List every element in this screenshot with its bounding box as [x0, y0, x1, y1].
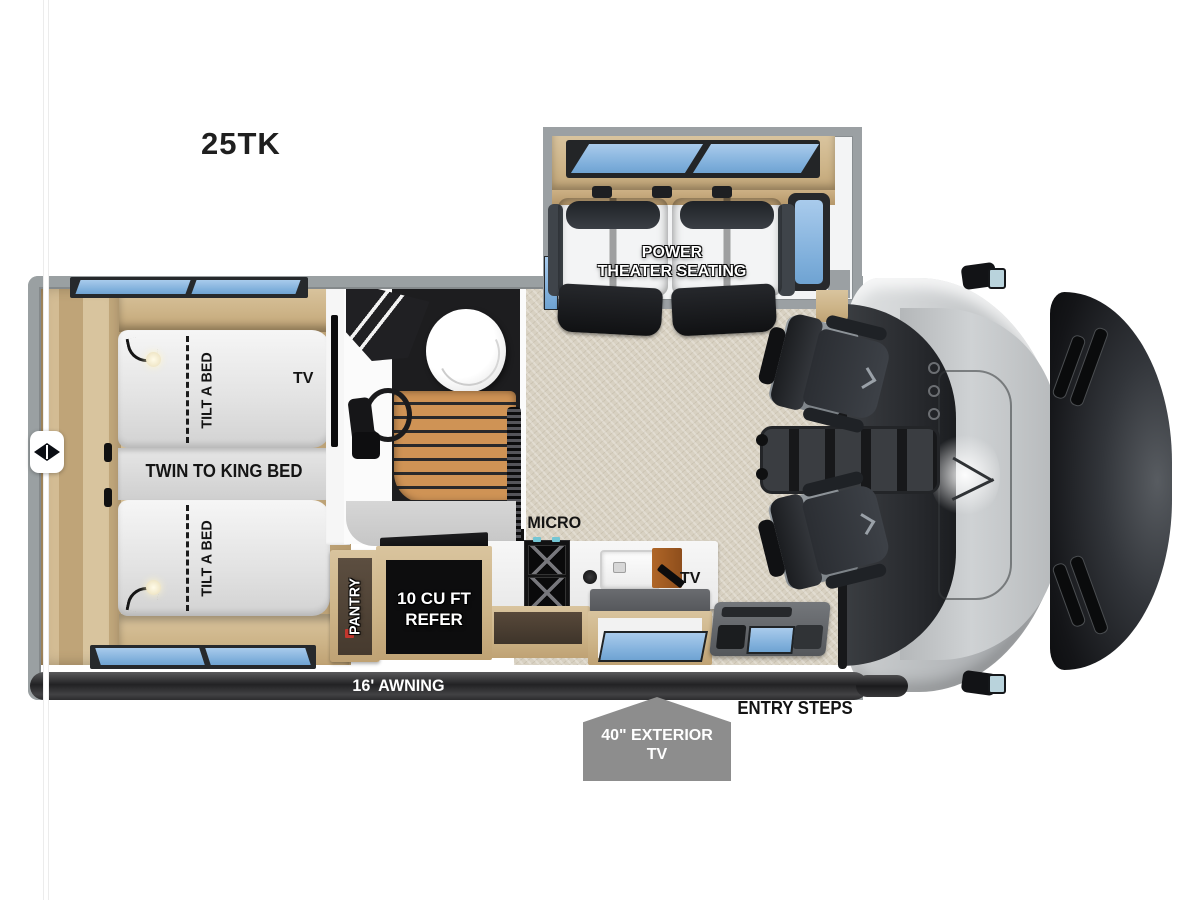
- micro-label: MICRO: [527, 513, 581, 533]
- slideout-side-window-right-pane: [795, 200, 823, 284]
- bath-sink-basin: [352, 432, 380, 459]
- refer-label: 10 CU FT REFER: [386, 588, 482, 630]
- tilt-bed-fold-line-bottom: [186, 505, 189, 611]
- exterior-tv-label: 40" EXTERIOR TV: [583, 726, 731, 764]
- slideout-window-pane2: [693, 144, 819, 173]
- slideout-window-pane1: [571, 144, 703, 173]
- reading-lamp-top-shade: [146, 352, 161, 367]
- entry-steps-tread-right: [793, 625, 824, 649]
- cabinet-handle-upper: [104, 443, 112, 462]
- theater-footrest-right: [671, 283, 777, 336]
- seat-mount-tab2: [652, 186, 672, 198]
- tilt-a-bed-label-bottom: TILT A BED: [199, 505, 216, 611]
- slide-indicator: [30, 431, 64, 473]
- entry-door-window: [598, 631, 708, 662]
- bedroom-window-top-pane1: [75, 280, 190, 294]
- sink-drain: [613, 562, 626, 573]
- shower-teak-floor: [394, 391, 516, 503]
- dash-vent-dot-1: [928, 362, 940, 374]
- awning-label: 16' AWNING: [352, 676, 444, 696]
- bedroom-window-bottom-pane2: [205, 648, 311, 665]
- pantry-label: PANTRY: [347, 559, 364, 654]
- awning-roller-cap: [856, 675, 908, 697]
- stove-knob-left: [533, 537, 541, 542]
- entry-steps-top-rail: [721, 607, 792, 617]
- tilt-bed-fold-line-top: [186, 336, 189, 443]
- refer-label-line2: REFER: [386, 609, 482, 630]
- refer-label-line1: 10 CU FT: [386, 588, 482, 609]
- tilt-a-bed-label-top: TILT A BED: [199, 337, 216, 443]
- dash-vent-dot-3: [928, 408, 940, 420]
- bedroom-tv: [331, 315, 338, 447]
- cabinet-handle-lower: [104, 488, 112, 507]
- stove-burner-top: [528, 545, 566, 575]
- entry-steps: [709, 602, 831, 656]
- bedroom-tv-label: TV: [293, 370, 313, 388]
- awning-bar: [30, 672, 868, 700]
- windshield-reflection: [930, 430, 1000, 520]
- side-mirror-bottom-glass: [988, 674, 1006, 694]
- theater-seating-label-line1: POWER: [560, 243, 784, 262]
- galley-lower-cabinet-interior: [494, 612, 582, 644]
- reading-lamp-bottom-shade: [146, 580, 161, 595]
- entry-steps-window: [746, 626, 795, 654]
- sink-faucet: [583, 570, 597, 584]
- wardrobe-cabinet: [39, 287, 121, 665]
- console-knob-bottom: [756, 468, 768, 480]
- twin-to-king-label: TWIN TO KING BED: [125, 461, 322, 482]
- entry-steps-label: ENTRY STEPS: [737, 698, 852, 719]
- theater-headrest-left: [566, 201, 660, 229]
- bedroom-window-bottom-pane1: [95, 648, 205, 665]
- theater-headrest-right: [680, 201, 774, 229]
- exterior-tv-label-line2: TV: [583, 745, 731, 764]
- dash-vent-dot-2: [928, 385, 940, 397]
- stove-burner-bottom: [528, 577, 566, 607]
- kitchen-sink: [600, 550, 660, 590]
- seat-mount-tab1: [592, 186, 612, 198]
- theater-footrest-left: [557, 283, 663, 336]
- stove-knob-right: [552, 537, 560, 542]
- theater-seating-label-line2: THEATER SEATING: [560, 262, 784, 281]
- bedroom-window-top-pane2: [191, 280, 300, 294]
- kitchen-tv-label: TV: [680, 570, 700, 588]
- slide-indicator-divider: [46, 445, 48, 459]
- page-title: 25TK: [201, 126, 281, 162]
- side-mirror-top-glass: [988, 268, 1006, 289]
- theater-seating-label: POWER THEATER SEATING: [560, 243, 784, 281]
- exterior-tv-label-line1: 40" EXTERIOR: [583, 726, 731, 745]
- entry-steps-tread-left: [716, 625, 747, 649]
- floorplan-canvas: 25TK TILT A BED TILT A BED TWIN TO KING …: [0, 0, 1200, 900]
- seat-mount-tab3: [712, 186, 732, 198]
- dinette-table: [590, 589, 710, 613]
- console-knob-top: [756, 434, 768, 446]
